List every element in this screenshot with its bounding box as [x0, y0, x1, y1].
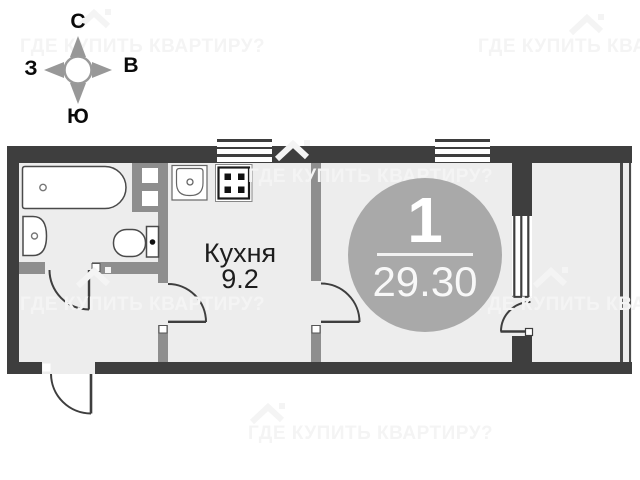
compass-east-label: В	[123, 54, 138, 78]
entrance-door	[43, 364, 92, 414]
room-count: 1	[407, 190, 443, 250]
bathroom-door	[50, 264, 101, 310]
bathtub	[23, 167, 127, 209]
toilet	[114, 227, 159, 258]
apartment-badge: 1 29.30	[348, 178, 502, 332]
floor-plan-page: ГДЕ КУПИТЬ КВАРТИРУ? ГДЕ КУПИТЬ КВАРТИРУ…	[0, 0, 640, 480]
compass: С Ю З В	[0, 0, 160, 140]
compass-west-label: З	[24, 57, 37, 81]
compass-north-label: С	[70, 10, 85, 34]
balcony-window	[512, 216, 532, 298]
compass-south-label: Ю	[67, 105, 89, 129]
bathroom-sink	[23, 217, 47, 256]
balcony-door	[501, 302, 533, 336]
total-area-value: 29.30	[372, 260, 477, 304]
kitchen-name: Кухня	[180, 241, 300, 266]
room-door	[312, 284, 360, 334]
compass-rose-icon	[40, 30, 120, 110]
kitchen-sink	[172, 166, 207, 201]
badge-divider	[377, 253, 473, 256]
kitchen-label: Кухня 9.2	[180, 241, 300, 292]
stove	[216, 165, 253, 202]
kitchen-area-value: 9.2	[180, 267, 300, 292]
